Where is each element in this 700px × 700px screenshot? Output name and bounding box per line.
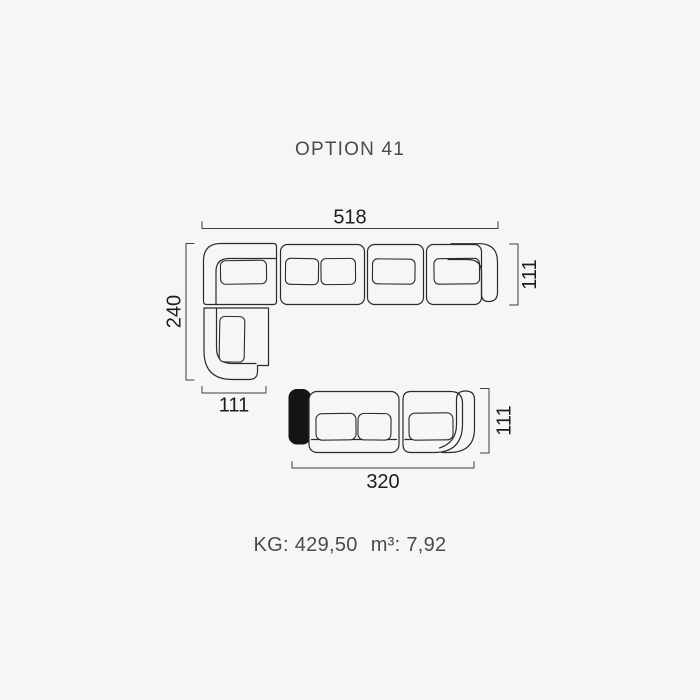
corner-chaise-module	[204, 308, 269, 380]
dimension-chaise-length: 240	[164, 244, 195, 381]
dimension-l-sofa-depth: 111	[510, 244, 542, 305]
seat-cushion	[358, 413, 391, 440]
armrest-black-module	[289, 390, 311, 445]
seat-cushion	[220, 260, 266, 284]
dim-label-l-sofa-width: 518	[333, 207, 366, 229]
dim-label-small-sofa-width: 320	[366, 471, 399, 493]
dimension-small-sofa-depth: 111	[481, 389, 516, 454]
dimension-l-sofa-width: 518	[202, 207, 498, 229]
seat-cushion	[409, 413, 453, 440]
dimension-small-sofa-width: 320	[292, 462, 474, 494]
weight-spec: KG: 429,50	[254, 534, 358, 557]
sofa-technical-drawing: 518 111 240 111 320	[0, 0, 700, 700]
spec-sheet: OPTION 41	[0, 0, 700, 700]
seat-cushion	[321, 258, 356, 284]
dim-label-l-sofa-depth: 111	[519, 259, 541, 289]
seat-cushion	[219, 316, 245, 362]
weight-volume-specs: KG: 429,50 m³: 7,92	[0, 534, 700, 557]
volume-spec: m³: 7,92	[371, 534, 447, 557]
two-seater-drawing	[289, 390, 475, 453]
seat-cushion	[316, 413, 356, 440]
dim-label-small-sofa-depth: 111	[494, 405, 516, 435]
seat-cushion	[285, 258, 318, 284]
seat-cushion	[372, 259, 415, 284]
dimension-chaise-width: 111	[202, 387, 266, 417]
dim-label-chaise-length: 240	[164, 295, 186, 328]
dim-label-chaise-width: 111	[219, 395, 249, 417]
seat-cushion	[434, 258, 480, 284]
l-sofa-drawing	[204, 244, 498, 380]
